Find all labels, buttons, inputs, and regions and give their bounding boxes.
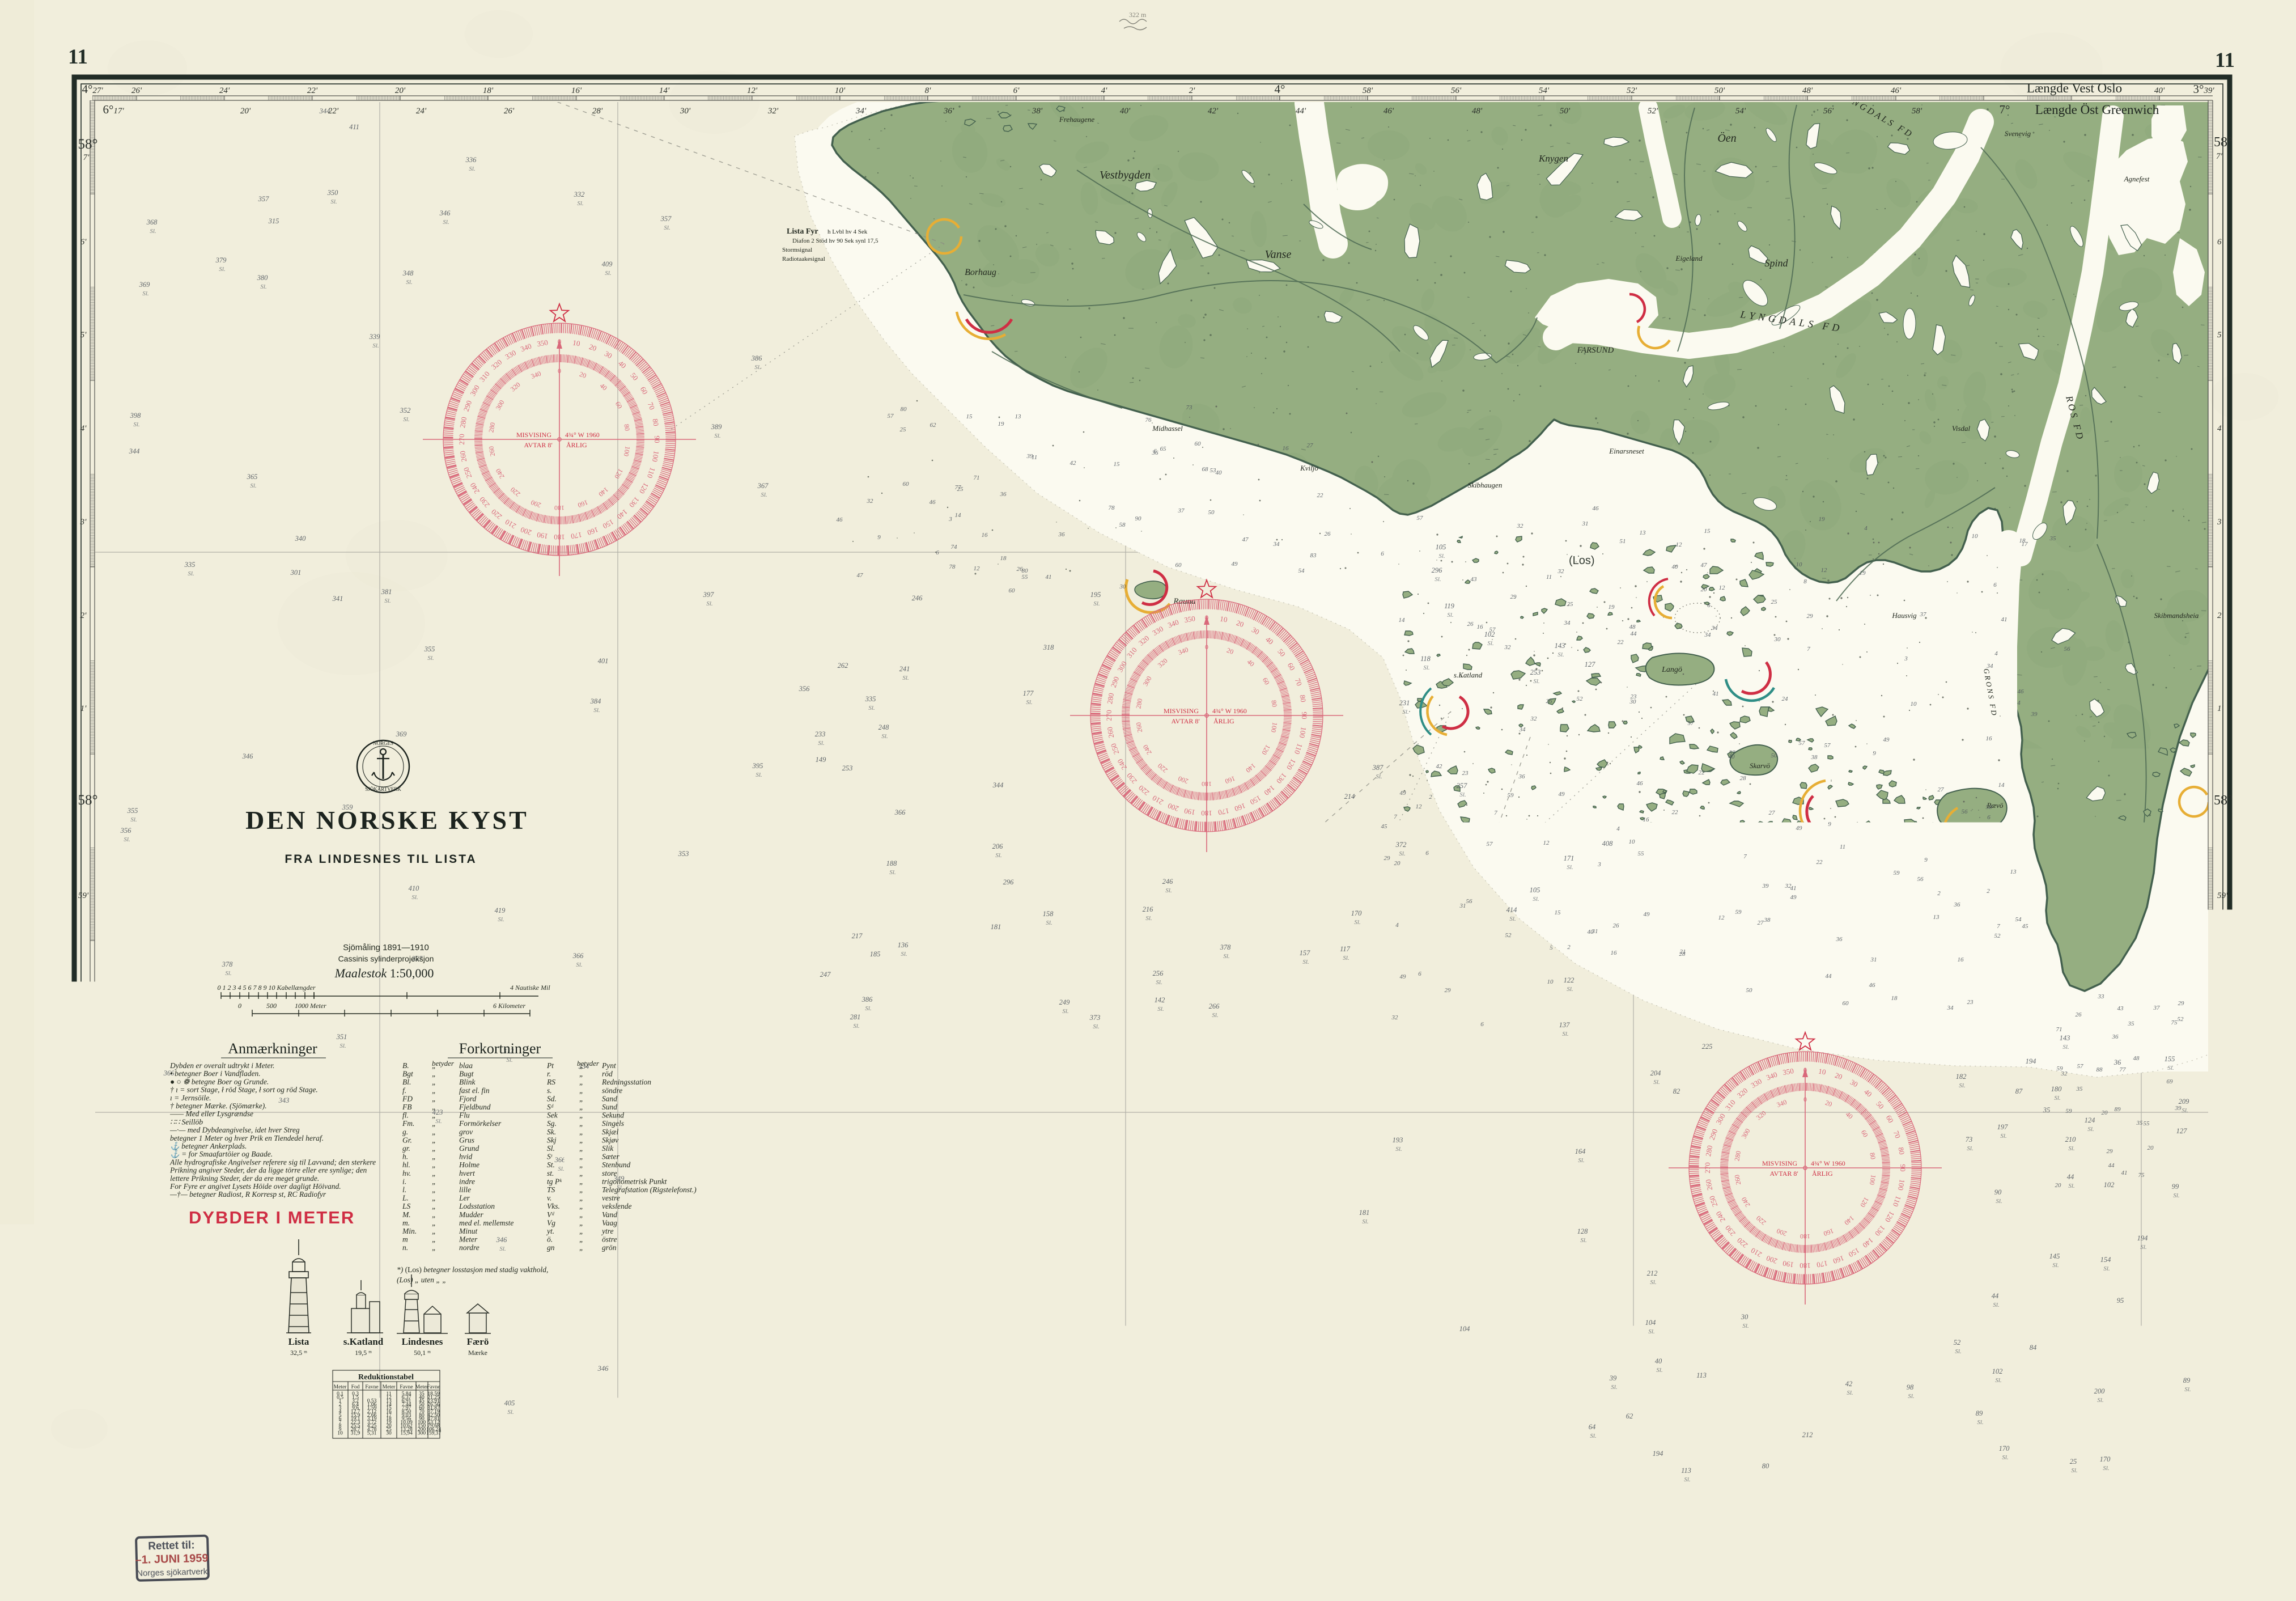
svg-text:6: 6	[1418, 971, 1421, 977]
svg-text:∷∷ Seillöb: ∷∷ Seillöb	[170, 1117, 203, 1126]
svg-text:„: „	[579, 1086, 584, 1095]
svg-text:351: 351	[336, 1033, 347, 1041]
svg-text:56': 56'	[1451, 1511, 1462, 1520]
svg-text:Sekund: Sekund	[602, 1111, 624, 1120]
svg-text:73: 73	[1966, 1136, 1973, 1143]
svg-text:Sl.: Sl.	[1590, 1433, 1596, 1439]
svg-text:55: 55	[983, 1412, 990, 1419]
svg-text:34': 34'	[855, 1493, 867, 1502]
svg-text:37: 37	[2153, 1005, 2161, 1011]
svg-text:32: 32	[867, 498, 874, 505]
svg-text:50,1 ᵐ: 50,1 ᵐ	[414, 1349, 431, 1357]
svg-text:Sl.: Sl.	[130, 816, 137, 823]
svg-text:49: 49	[1790, 894, 1797, 901]
svg-text:46: 46	[2018, 688, 2025, 695]
svg-text:6: 6	[1480, 1021, 1484, 1028]
svg-text:46: 46	[1869, 982, 1876, 989]
svg-text:Sl.: Sl.	[1487, 640, 1493, 647]
svg-text:67: 67	[1170, 1405, 1177, 1412]
svg-text:„: „	[579, 1185, 584, 1194]
svg-text:18: 18	[1891, 995, 1898, 1002]
svg-text:194: 194	[2026, 1057, 2036, 1065]
svg-text:44: 44	[1631, 630, 1637, 637]
svg-text:209: 209	[2179, 1098, 2190, 1106]
svg-text:36: 36	[1836, 936, 1843, 943]
svg-text:⚓ betegner Ankerplads.: ⚓ betegner Ankerplads.	[170, 1141, 247, 1150]
svg-text:Færö: Færö	[467, 1336, 489, 1347]
svg-text:54': 54'	[1539, 1511, 1550, 1520]
svg-text:–1. JUNI 1959: –1. JUNI 1959	[135, 1552, 209, 1566]
svg-text:Sl.: Sl.	[1438, 553, 1445, 560]
svg-text:44: 44	[1826, 973, 1832, 980]
svg-text:DEN NORSKE KYST: DEN NORSKE KYST	[245, 806, 529, 835]
svg-text:Sl.: Sl.	[2002, 1454, 2008, 1461]
svg-text:• betegner Boer i Vandfladen.: • betegner Boer i Vandfladen.	[170, 1069, 261, 1078]
svg-text:Sl.: Sl.	[902, 675, 909, 681]
svg-text:Ravneheia: Ravneheia	[706, 1328, 738, 1336]
svg-text:Længde Vest Oslo: Længde Vest Oslo	[159, 1509, 254, 1523]
svg-text:248: 248	[878, 723, 890, 731]
svg-text:Svenevig: Svenevig	[2005, 129, 2031, 138]
svg-text:355: 355	[424, 645, 435, 653]
svg-text:49: 49	[1400, 790, 1407, 797]
svg-text:29: 29	[1384, 855, 1391, 862]
svg-text:4: 4	[1994, 650, 1998, 657]
svg-text:296: 296	[1003, 878, 1015, 886]
svg-text:Lindesnes Fyr: Lindesnes Fyr	[2137, 1020, 2192, 1030]
svg-text:386: 386	[751, 354, 763, 362]
svg-text:5': 5'	[80, 331, 87, 340]
svg-text:Sl.: Sl.	[2184, 1386, 2191, 1393]
svg-text:Kjepsö: Kjepsö	[1916, 883, 1935, 891]
svg-text:Kviljo: Kviljo	[1300, 464, 1318, 472]
svg-text:82: 82	[1673, 1087, 1680, 1095]
svg-text:194: 194	[2137, 1234, 2148, 1242]
svg-text:25: 25	[967, 1394, 974, 1401]
svg-text:Sl.: Sl.	[818, 740, 824, 747]
svg-text:„: „	[579, 1169, 584, 1178]
svg-text:37: 37	[689, 1132, 696, 1139]
svg-text:56: 56	[1962, 808, 1968, 815]
svg-text:99: 99	[2172, 1183, 2179, 1191]
svg-text:hl.: hl.	[402, 1160, 410, 1169]
svg-text:318: 318	[1043, 643, 1055, 651]
svg-text:154: 154	[2100, 1256, 2111, 1264]
svg-text:12': 12'	[747, 86, 758, 95]
svg-text:56: 56	[1917, 876, 1924, 883]
svg-text:Sl.: Sl.	[427, 655, 434, 662]
svg-text:48': 48'	[1472, 1493, 1483, 1502]
svg-text:3: 3	[948, 516, 952, 523]
svg-text:Sund: Sund	[602, 1103, 617, 1111]
svg-text:Sl.: Sl.	[2103, 1465, 2109, 1472]
svg-text:25: 25	[2070, 1458, 2077, 1466]
svg-text:158: 158	[1043, 910, 1054, 918]
svg-text:FRA LINDESNES TIL LISTA: FRA LINDESNES TIL LISTA	[285, 853, 477, 866]
svg-text:55: 55	[2144, 1120, 2150, 1127]
svg-text:391: 391	[249, 1352, 261, 1360]
svg-text:Sl.: Sl.	[2182, 1107, 2188, 1114]
svg-text:40: 40	[1216, 469, 1223, 476]
svg-text:62: 62	[930, 422, 937, 429]
svg-text:57: 57	[877, 1315, 884, 1322]
svg-text:Diafon 3 Stöd hv 2 Min.: Diafon 3 Stöd hv 2 Min.	[2121, 1048, 2182, 1055]
svg-text:19: 19	[998, 421, 1005, 427]
svg-text:Favne: Favne	[365, 1384, 378, 1390]
svg-text:357: 357	[258, 195, 270, 203]
svg-text:LS: LS	[402, 1202, 411, 1210]
svg-text:30': 30'	[680, 1493, 691, 1502]
svg-text:60: 60	[903, 481, 910, 488]
svg-text:6: 6	[804, 1226, 807, 1232]
svg-text:4: 4	[1864, 525, 1868, 532]
svg-text:32: 32	[1517, 523, 1524, 530]
svg-text:117: 117	[1340, 945, 1351, 953]
svg-text:181: 181	[1359, 1209, 1370, 1217]
svg-text:Formörkelser: Formörkelser	[459, 1119, 502, 1128]
svg-text:28: 28	[1740, 775, 1747, 782]
svg-text:170: 170	[1351, 909, 1363, 917]
svg-text:hvert: hvert	[459, 1169, 476, 1178]
svg-text:108: 108	[1093, 1431, 1102, 1438]
svg-text:Sl.: Sl.	[577, 200, 583, 207]
svg-text:41: 41	[1713, 691, 1719, 697]
svg-text:42': 42'	[1208, 107, 1219, 116]
svg-text:blaa: blaa	[459, 1061, 473, 1070]
svg-text:Lodsstation: Lodsstation	[459, 1202, 495, 1210]
svg-text:188: 188	[886, 859, 898, 867]
svg-text:Sl.: Sl.	[2068, 1183, 2074, 1189]
svg-text:53': 53'	[78, 1451, 89, 1460]
svg-text:13: 13	[1933, 914, 1940, 921]
svg-text:Sl.: Sl.	[384, 598, 391, 604]
svg-text:Sl.: Sl.	[589, 1295, 596, 1302]
svg-text:h Lvbl hv 4 Sek: h Lvbl hv 4 Sek	[827, 228, 868, 235]
svg-text:16': 16'	[571, 86, 582, 95]
svg-text:28': 28'	[592, 1493, 603, 1502]
svg-text:25: 25	[1771, 599, 1778, 605]
svg-text:„: „	[579, 1194, 584, 1202]
svg-text:Blink: Blink	[459, 1078, 476, 1086]
svg-text:71: 71	[974, 475, 980, 481]
svg-text:34: 34	[1704, 632, 1712, 638]
svg-text:39: 39	[2175, 1105, 2182, 1112]
svg-text:353: 353	[205, 1232, 216, 1240]
svg-text:65: 65	[1160, 446, 1167, 452]
svg-text:Maalestok 1:50,000: Maalestok 1:50,000	[334, 966, 434, 980]
svg-text:—†— betegner Radiost, R Korres: —†— betegner Radiost, R Korresp st, RC R…	[169, 1190, 326, 1198]
svg-text:Sl.: Sl.	[188, 570, 194, 577]
svg-text:Redningsstation: Redningsstation	[601, 1078, 651, 1086]
svg-text:29: 29	[2107, 1148, 2113, 1155]
svg-text:l.: l.	[402, 1185, 406, 1194]
svg-text:95: 95	[1236, 1411, 1242, 1417]
svg-text:h.: h.	[402, 1153, 408, 1161]
svg-text:10: 10	[1629, 838, 1636, 845]
svg-text:Sl.: Sl.	[1656, 1367, 1662, 1374]
svg-text:„: „	[579, 1153, 584, 1161]
svg-text:386: 386	[861, 996, 873, 1003]
svg-text:Frehaugene: Frehaugene	[1059, 115, 1095, 124]
svg-text:50: 50	[893, 1332, 899, 1339]
svg-text:89: 89	[1976, 1409, 1983, 1417]
svg-text:Sg.: Sg.	[547, 1119, 557, 1128]
svg-text:60: 60	[1843, 1000, 1849, 1007]
svg-text:137: 137	[1559, 1021, 1571, 1029]
svg-text:„: „	[432, 1169, 436, 1178]
svg-text:Sl.: Sl.	[142, 290, 148, 297]
svg-text:54: 54	[1298, 567, 1305, 574]
svg-text:37: 37	[1178, 507, 1185, 514]
svg-text:s.Katland: s.Katland	[1454, 671, 1483, 679]
svg-text:398: 398	[130, 412, 142, 420]
svg-text:For mulige senere Forandringer: For mulige senere Forandringer henvises …	[181, 1529, 480, 1540]
svg-text:26: 26	[919, 1354, 926, 1361]
svg-text:58': 58'	[1363, 1511, 1373, 1520]
svg-text:11: 11	[897, 1342, 903, 1349]
svg-text:med el. mellemste: med el. mellemste	[459, 1218, 513, 1227]
svg-text:36: 36	[2112, 1034, 2119, 1040]
svg-text:4': 4'	[1101, 86, 1108, 95]
svg-text:47: 47	[1701, 562, 1708, 569]
svg-text:42': 42'	[2066, 1511, 2077, 1520]
svg-text:24: 24	[1782, 696, 1789, 702]
svg-text:57: 57	[1729, 749, 1736, 756]
svg-text:s.Katland: s.Katland	[343, 1336, 384, 1347]
svg-text:84: 84	[2030, 1344, 2037, 1352]
svg-text:231: 231	[1399, 699, 1410, 707]
svg-text:„: „	[432, 1078, 436, 1086]
svg-text:„: „	[579, 1160, 584, 1169]
svg-text:341: 341	[332, 595, 343, 603]
svg-text:48: 48	[1629, 624, 1636, 630]
svg-text:Meter: Meter	[334, 1384, 347, 1390]
svg-text:57: 57	[888, 413, 894, 420]
svg-text:20: 20	[715, 1149, 722, 1156]
svg-text:49: 49	[827, 1269, 834, 1276]
svg-text:52: 52	[2178, 1016, 2184, 1023]
svg-text:225: 225	[1702, 1043, 1713, 1051]
svg-text:1000 Meter: 1000 Meter	[295, 1002, 326, 1010]
svg-text:Sl.: Sl.	[754, 364, 761, 371]
svg-text:Sl.: Sl.	[499, 1246, 506, 1252]
svg-text:68: 68	[1202, 466, 1209, 473]
svg-text:4: 4	[2017, 700, 2021, 706]
svg-text:Singels: Singels	[602, 1119, 624, 1128]
svg-text:15: 15	[966, 413, 973, 420]
svg-text:105: 105	[1530, 886, 1540, 894]
svg-text:40: 40	[1655, 1357, 1662, 1365]
svg-text:353: 353	[678, 850, 689, 858]
svg-text:Sl.: Sl.	[1223, 953, 1229, 960]
svg-text:46: 46	[837, 516, 843, 523]
svg-text:Sl.: Sl.	[1959, 1082, 1965, 1089]
svg-text:83: 83	[1310, 552, 1317, 559]
svg-text:253: 253	[1530, 668, 1541, 676]
svg-text:73: 73	[1186, 404, 1193, 411]
svg-text:56: 56	[1466, 898, 1473, 905]
svg-text:Knyggen: Knyggen	[780, 1456, 807, 1464]
svg-text:Sl.: Sl.	[2054, 1095, 2060, 1102]
svg-text:Sl.: Sl.	[339, 1043, 346, 1049]
svg-text:4°: 4°	[1275, 1509, 1285, 1522]
svg-text:346: 346	[439, 209, 451, 217]
svg-text:20': 20'	[240, 107, 251, 116]
svg-text:Sl.: Sl.	[124, 836, 130, 843]
svg-text:Mudder: Mudder	[459, 1210, 483, 1219]
svg-text:33: 33	[2098, 993, 2105, 1000]
svg-text:16: 16	[1986, 735, 1993, 742]
svg-text:45: 45	[2022, 923, 2029, 930]
svg-text:Sl.: Sl.	[593, 707, 600, 714]
svg-text:Sl.: Sl.	[868, 705, 875, 711]
svg-text:Sl.: Sl.	[889, 869, 896, 876]
svg-text:59': 59'	[78, 891, 89, 900]
svg-text:32: 32	[1557, 568, 1565, 575]
svg-text:346: 346	[242, 752, 254, 760]
svg-text:Lyngdal: Lyngdal	[1260, 1381, 1285, 1390]
svg-text:50': 50'	[1560, 1493, 1571, 1502]
svg-text:i.: i.	[402, 1177, 406, 1185]
svg-text:164: 164	[1575, 1147, 1586, 1155]
svg-text:206: 206	[992, 842, 1004, 850]
svg-text:46: 46	[1593, 505, 1599, 512]
svg-text:56': 56'	[78, 1171, 89, 1180]
svg-text:241: 241	[899, 665, 910, 673]
svg-text:v.: v.	[547, 1194, 551, 1202]
svg-text:41: 41	[2001, 616, 2008, 623]
svg-text:24': 24'	[416, 107, 427, 116]
svg-text:Sl.: Sl.	[1093, 1023, 1099, 1030]
svg-text:Min.: Min.	[402, 1227, 417, 1235]
svg-text:Sl.: Sl.	[1157, 1006, 1164, 1013]
svg-text:119: 119	[1444, 602, 1455, 610]
svg-text:19: 19	[1609, 604, 1615, 611]
svg-text:26: 26	[1325, 531, 1331, 537]
svg-text:5: 5	[1550, 944, 1553, 951]
svg-text:379: 379	[215, 256, 227, 264]
svg-text:3': 3'	[80, 518, 87, 527]
svg-text:80: 80	[1762, 1462, 1769, 1470]
svg-text:315: 315	[268, 217, 279, 225]
svg-text:6: 6	[1381, 550, 1384, 557]
svg-text:16: 16	[1611, 950, 1618, 956]
svg-text:Sl.: Sl.	[1156, 979, 1162, 986]
svg-text:182: 182	[1956, 1073, 1967, 1081]
svg-text:14': 14'	[659, 1511, 670, 1520]
svg-text:Hausvig: Hausvig	[1891, 611, 1917, 620]
svg-text:159,37: 159,37	[426, 1430, 441, 1436]
svg-text:*) (Los) betegner losstasjon m: *) (Los) betegner losstasjon med stadig …	[397, 1265, 548, 1274]
svg-text:2: 2	[1987, 888, 1990, 895]
svg-text:lille: lille	[459, 1185, 471, 1194]
svg-text:Maalestok 1:50,000: Maalestok 1:50,000	[1119, 1175, 1210, 1188]
svg-text:M.: M.	[402, 1210, 411, 1219]
svg-text:322 m: 322 m	[1129, 11, 1147, 19]
svg-text:30: 30	[1119, 583, 1127, 590]
svg-text:22: 22	[1317, 492, 1324, 499]
svg-text:77: 77	[2120, 1066, 2127, 1073]
svg-text:56: 56	[2064, 646, 2071, 653]
svg-text:Sl.: Sl.	[2097, 1397, 2103, 1404]
svg-text:15: 15	[1114, 461, 1121, 468]
svg-text:104: 104	[1459, 1325, 1470, 1333]
svg-text:128: 128	[1577, 1227, 1589, 1235]
svg-text:Sl.: Sl.	[2103, 1265, 2110, 1272]
svg-text:41: 41	[1046, 574, 1052, 581]
svg-text:47: 47	[1242, 536, 1249, 543]
svg-text:346: 346	[496, 1236, 508, 1244]
svg-text:39: 39	[677, 1156, 685, 1163]
svg-text:Dybden er overalt udtrykt i Me: Dybden er overalt udtrykt i Meter.	[169, 1061, 274, 1070]
svg-text:6': 6'	[1013, 1511, 1020, 1520]
svg-text:Sl.: Sl.	[706, 600, 712, 607]
svg-text:Sl.: Sl.	[1650, 1279, 1656, 1286]
svg-text:31: 31	[1870, 956, 1877, 963]
svg-text:59: 59	[1894, 870, 1900, 876]
svg-text:Sl.: Sl.	[1533, 896, 1539, 903]
svg-text:Sl.: Sl.	[435, 1118, 442, 1125]
svg-text:27: 27	[1769, 810, 1776, 816]
svg-text:102: 102	[2104, 1181, 2115, 1189]
svg-text:332: 332	[574, 190, 585, 198]
svg-text:„: „	[432, 1128, 436, 1136]
svg-text:48': 48'	[1472, 107, 1483, 116]
svg-text:48: 48	[2133, 1055, 2140, 1062]
svg-text:Sl.: Sl.	[1996, 1198, 2002, 1205]
svg-text:262: 262	[838, 662, 848, 670]
svg-text:Vaag: Vaag	[602, 1218, 617, 1227]
svg-text:Sl.: Sl.	[1062, 1008, 1068, 1015]
svg-text:„: „	[579, 1218, 584, 1227]
svg-text:5: 5	[711, 1136, 714, 1142]
svg-text:369: 369	[396, 730, 408, 738]
svg-text:● ○ ❁ betegne Boer og Grunde.: ● ○ ❁ betegne Boer og Grunde.	[170, 1077, 269, 1086]
svg-text:4': 4'	[1101, 1511, 1108, 1520]
svg-text:10': 10'	[835, 86, 846, 95]
svg-text:12': 12'	[747, 1511, 758, 1520]
svg-text:4°: 4°	[1275, 82, 1285, 96]
svg-text:Meter: Meter	[459, 1235, 478, 1244]
svg-text:57': 57'	[2217, 1078, 2228, 1087]
svg-text:11: 11	[2243, 1549, 2263, 1572]
svg-text:16: 16	[1958, 956, 1964, 963]
svg-text:„: „	[432, 1177, 436, 1185]
svg-text:355: 355	[168, 748, 179, 756]
svg-text:118: 118	[1420, 655, 1431, 663]
svg-text:Prikning angiver Steder, der d: Prikning angiver Steder, der da ligge tö…	[169, 1166, 367, 1175]
svg-text:22: 22	[699, 1126, 706, 1133]
svg-text:Sl.: Sl.	[1046, 920, 1052, 926]
svg-text:15: 15	[1704, 528, 1711, 535]
svg-text:384: 384	[190, 1043, 201, 1051]
svg-text:Bugt: Bugt	[459, 1070, 474, 1078]
svg-text:Sl.: Sl.	[1509, 916, 1516, 922]
svg-text:44: 44	[2067, 1173, 2074, 1181]
svg-text:58': 58'	[1912, 1493, 1922, 1502]
svg-text:39: 39	[2031, 711, 2038, 718]
svg-text:74: 74	[951, 544, 958, 550]
svg-text:Sl.: Sl.	[1653, 1079, 1660, 1086]
svg-text:36: 36	[1000, 491, 1007, 498]
svg-text:fast el. fin: fast el. fin	[459, 1086, 490, 1095]
svg-text:Sl.: Sl.	[1908, 1393, 1914, 1400]
svg-text:301: 301	[290, 569, 302, 577]
svg-text:28': 28'	[592, 107, 603, 116]
svg-text:54': 54'	[1735, 107, 1746, 116]
svg-text:6: 6	[1425, 850, 1429, 857]
svg-text:45: 45	[1381, 823, 1388, 830]
